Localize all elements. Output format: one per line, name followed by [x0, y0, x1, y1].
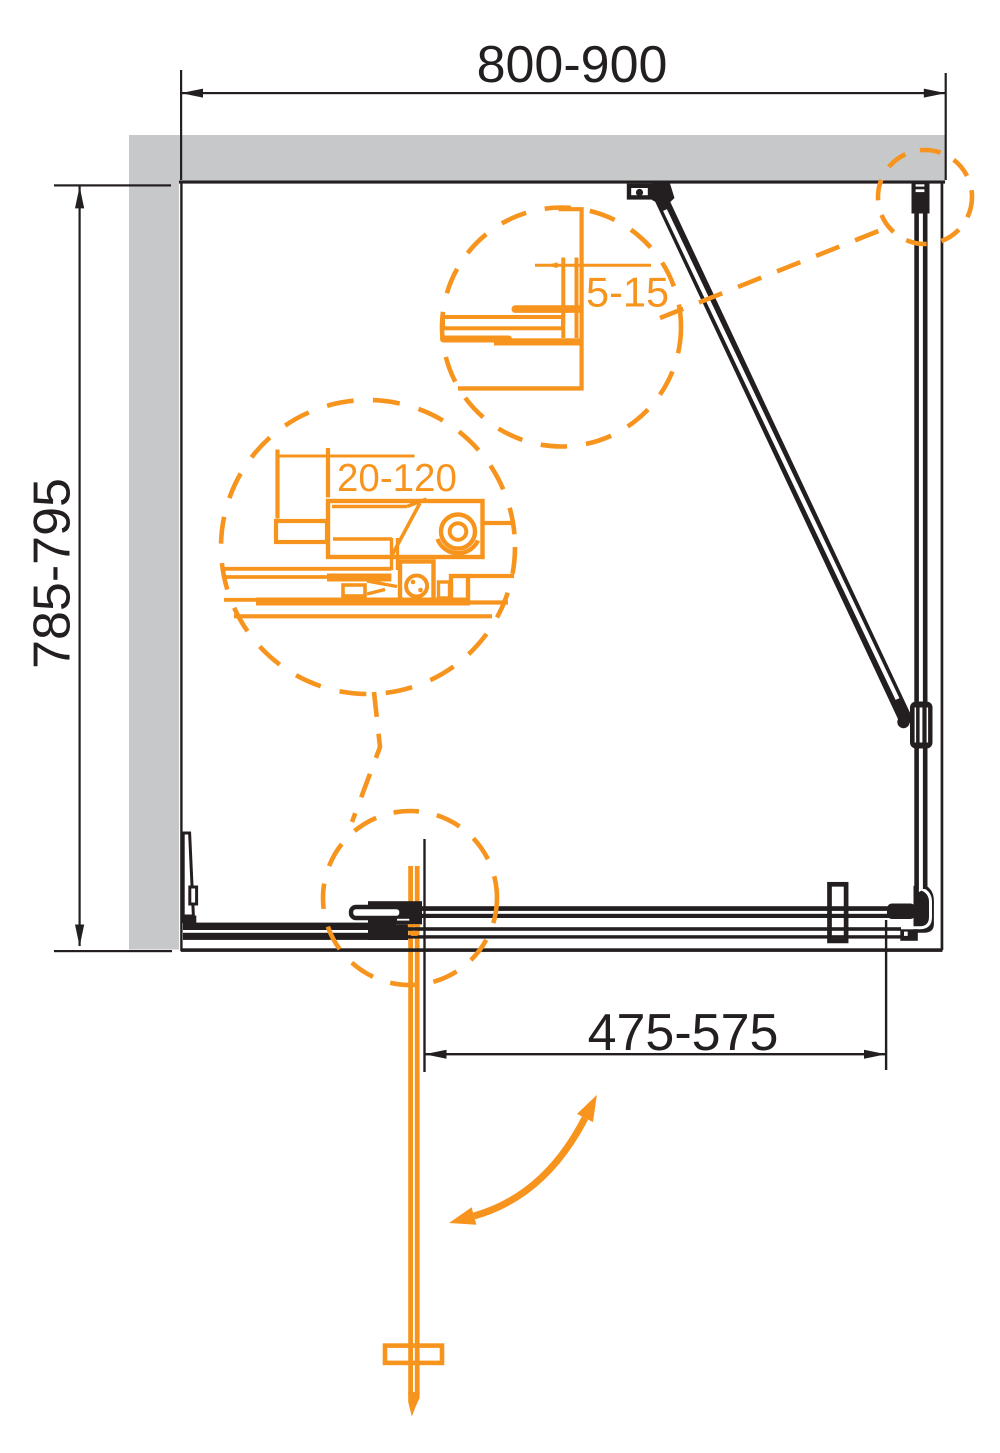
- svg-text:785-795: 785-795: [24, 478, 82, 669]
- svg-text:5-15: 5-15: [586, 269, 669, 316]
- svg-text:20-120: 20-120: [337, 457, 457, 500]
- svg-text:475-575: 475-575: [588, 1004, 779, 1062]
- svg-text:800-900: 800-900: [477, 36, 668, 94]
